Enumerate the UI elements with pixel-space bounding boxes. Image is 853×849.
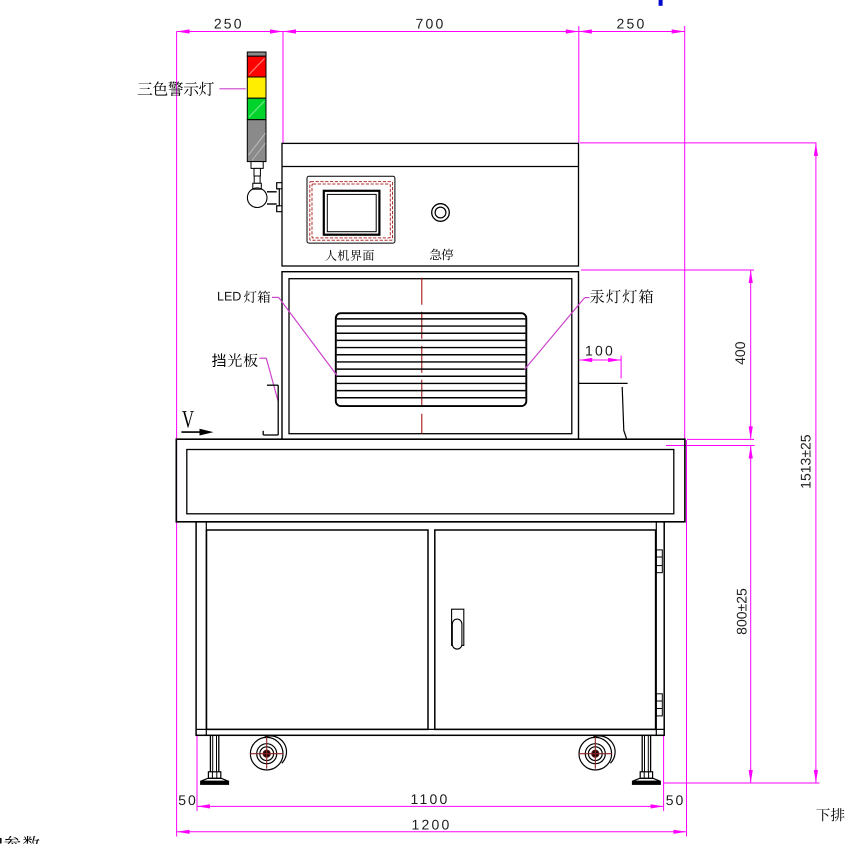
svg-text:1200: 1200 <box>412 816 452 832</box>
svg-text:LED: LED <box>217 289 241 303</box>
svg-text:400: 400 <box>732 341 748 365</box>
svg-text:50: 50 <box>178 792 198 808</box>
svg-text:250: 250 <box>617 16 647 32</box>
svg-text:250: 250 <box>214 16 244 32</box>
svg-text:1513±25: 1513±25 <box>798 434 814 489</box>
svg-text:100: 100 <box>585 343 615 359</box>
svg-text:V: V <box>182 406 194 433</box>
svg-text:800±25: 800±25 <box>733 588 749 635</box>
svg-text:50: 50 <box>666 792 686 808</box>
svg-text:700: 700 <box>416 16 446 32</box>
svg-text:1100: 1100 <box>411 791 450 807</box>
